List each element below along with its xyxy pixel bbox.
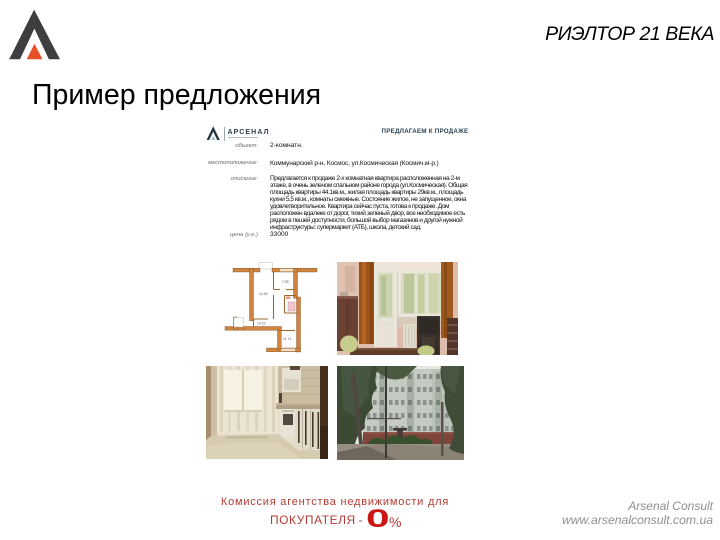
- svg-text:14.22: 14.22: [257, 322, 266, 326]
- svg-text:11.74: 11.74: [283, 337, 291, 341]
- svg-text:7.59: 7.59: [282, 280, 289, 284]
- svg-text:14.45: 14.45: [259, 292, 268, 296]
